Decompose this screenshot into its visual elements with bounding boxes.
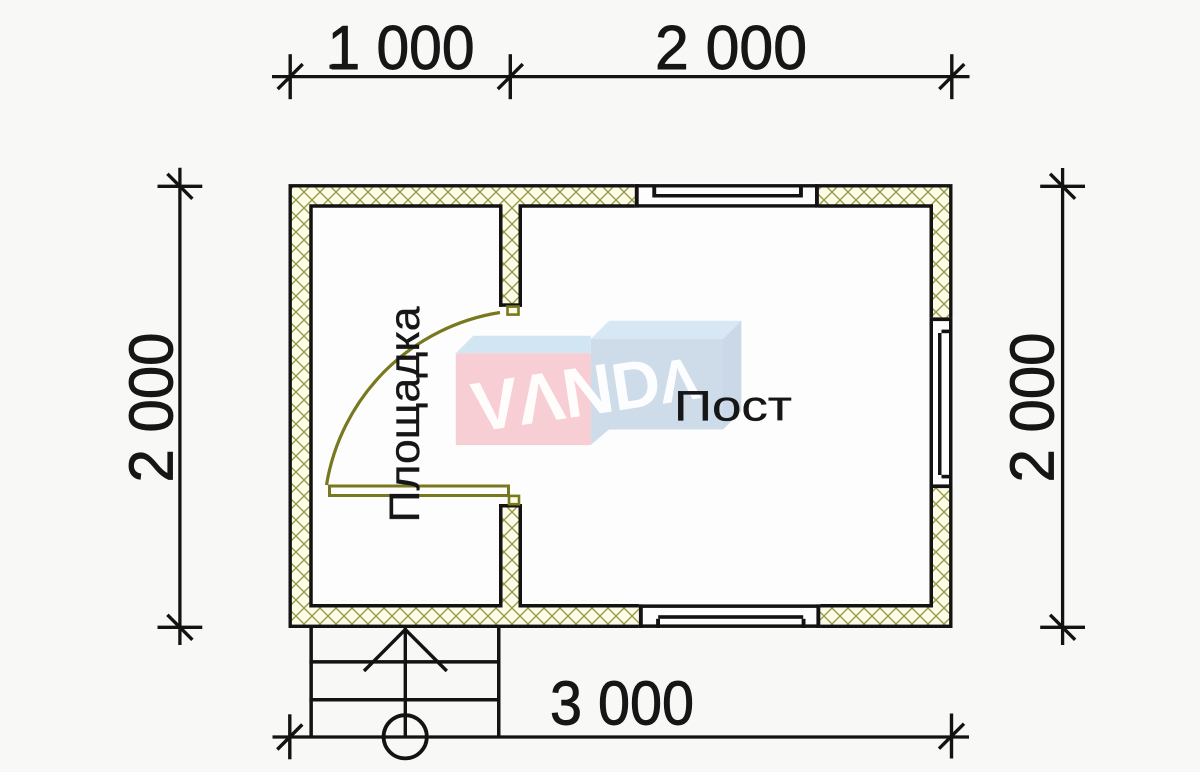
svg-text:3 000: 3 000 [550, 670, 694, 739]
svg-text:2 000: 2 000 [999, 333, 1068, 483]
svg-text:1 000: 1 000 [328, 14, 475, 83]
svg-text:2 000: 2 000 [118, 333, 187, 483]
svg-text:Площадка: Площадка [381, 306, 429, 522]
svg-text:Пост: Пост [674, 383, 792, 431]
svg-text:2 000: 2 000 [655, 14, 807, 83]
